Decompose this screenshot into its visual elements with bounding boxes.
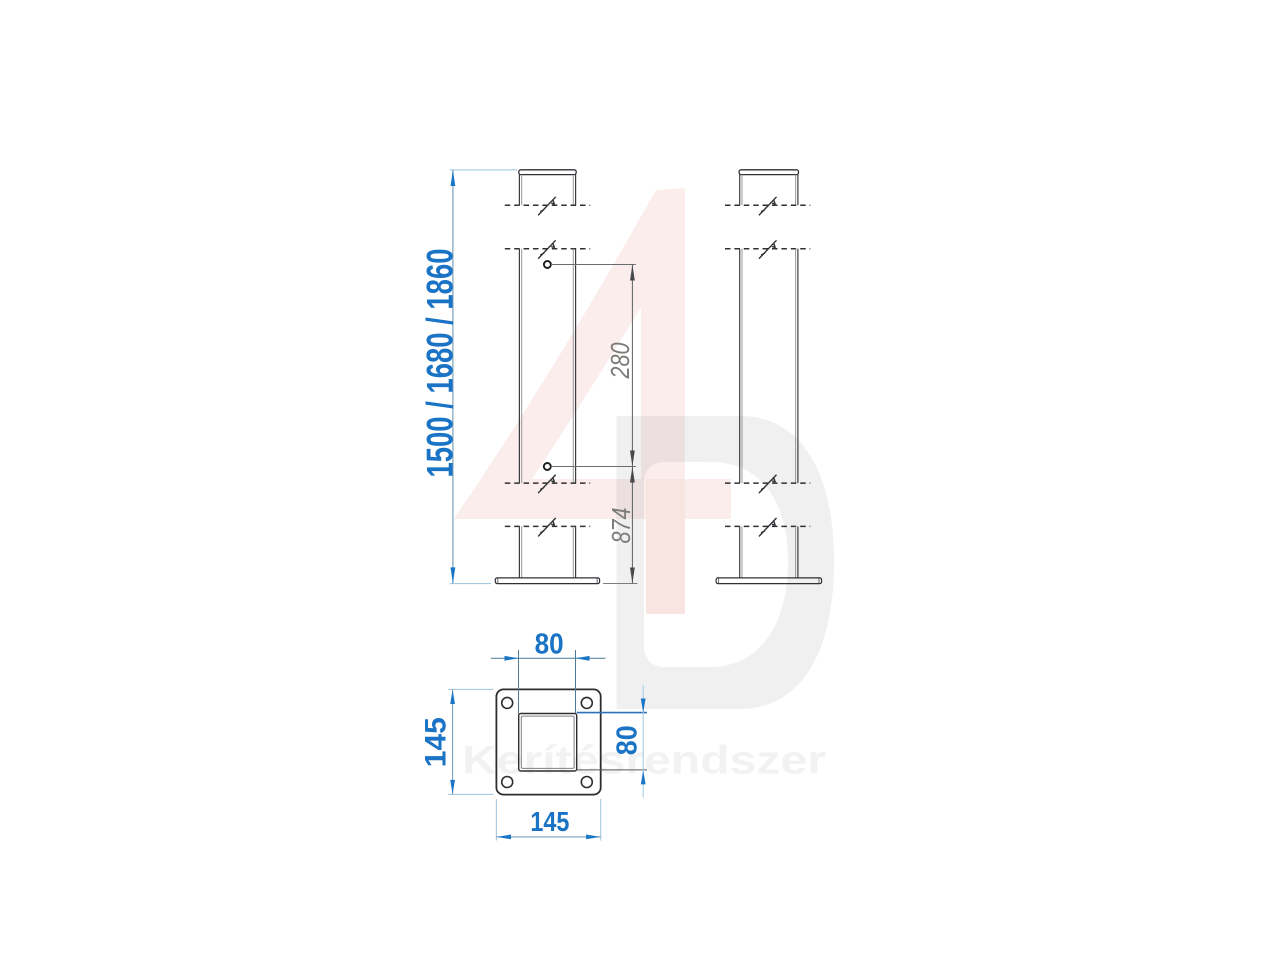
- svg-text:280: 280: [607, 343, 635, 380]
- svg-text:80: 80: [535, 629, 564, 661]
- svg-text:874: 874: [608, 508, 636, 544]
- svg-text:145: 145: [420, 717, 453, 767]
- svg-text:1500 / 1680 / 1860: 1500 / 1680 / 1860: [419, 249, 460, 478]
- svg-text:80: 80: [611, 725, 643, 755]
- svg-text:145: 145: [530, 806, 569, 837]
